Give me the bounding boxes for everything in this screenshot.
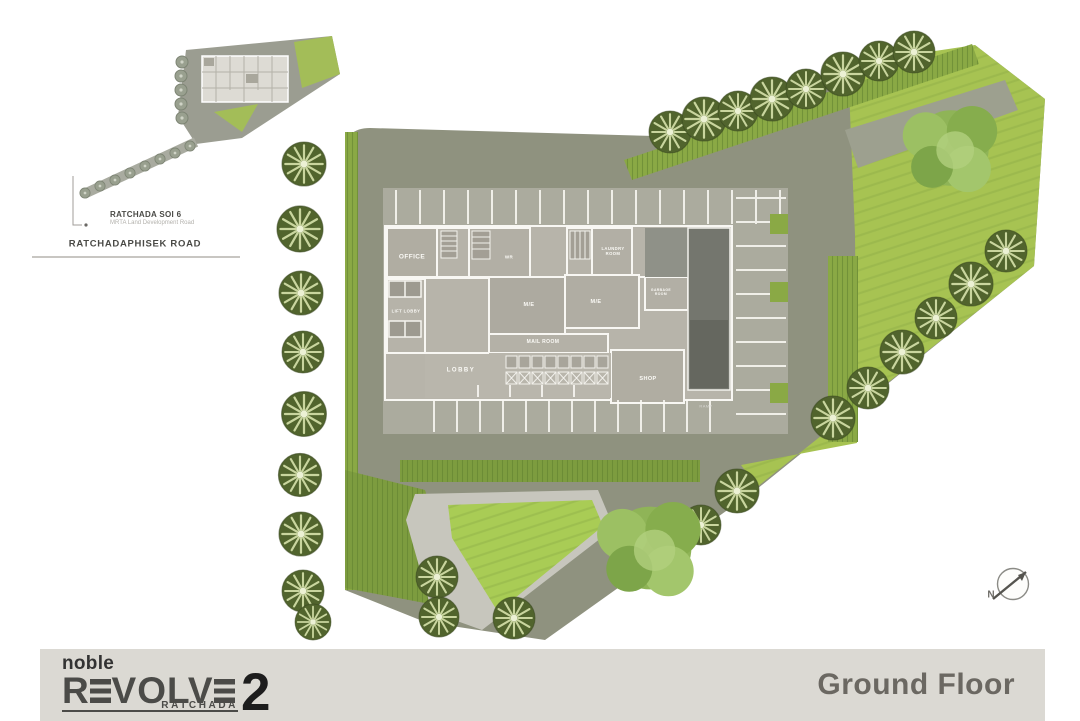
building-footprint [383,188,788,434]
floor-title: Ground Floor [817,668,1015,702]
room-label-office: OFFICE [399,253,425,260]
site-plan-figure: OFFICE LIFT LOBBY WR LAUNDRY ROOM M/E M/… [0,0,1080,721]
room-label-lobby: LOBBY [447,368,476,375]
room-label-shop: SHOP [639,376,656,382]
logo-rule: RATCHADA [62,710,238,712]
room-label-mail-room: MAIL ROOM [527,340,560,346]
brand-logo: noble RVOLV RATCHADA 2 [62,654,270,712]
inset-soi-sublabel: MRTA Land Development Road [110,220,194,226]
inset-road-label: RATCHADAPHISEK ROAD [69,239,201,250]
logo-sub-text: RATCHADA [161,700,238,711]
north-label: N [987,590,994,601]
trees-left-row [277,142,331,640]
inset-left-trees [175,56,188,124]
room-label-me-center: M/E [524,302,535,308]
room-label-garbage: GARBAGE ROOM [649,289,673,297]
room-label-me-right: M/E [591,299,602,305]
site-plan-drawing [0,0,1080,721]
compass-icon [993,569,1029,600]
room-label-wr: WR [505,254,513,259]
logo-number-text: 2 [241,674,270,712]
footer-bar: noble RVOLV RATCHADA 2 Ground Floor [40,649,1045,721]
room-label-laundry-room: LAUNDRY ROOM [599,247,627,257]
room-label-ramp: RAMP [699,405,712,410]
room-label-lift-lobby: LIFT LOBBY [392,310,421,315]
inset-soi-label: RATCHADA SOI 6 [110,210,181,219]
